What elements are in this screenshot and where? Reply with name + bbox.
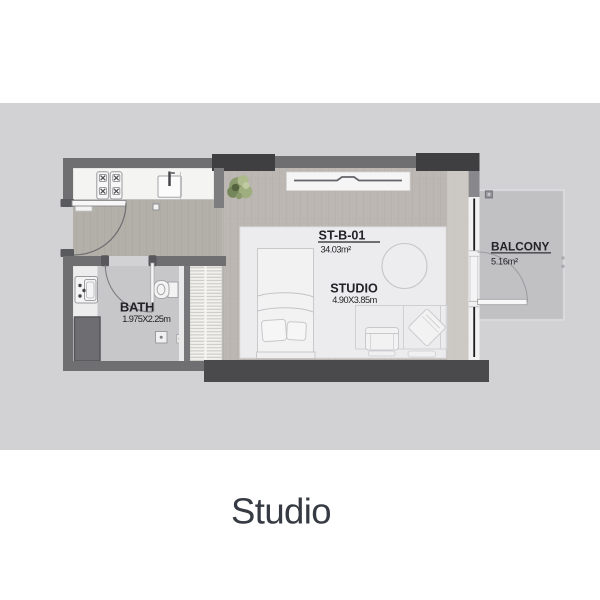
svg-text:Studio: Studio (231, 491, 331, 532)
svg-text:STUDIO: STUDIO (330, 281, 378, 295)
svg-text:BATH: BATH (120, 300, 154, 315)
svg-text:ST-B-01: ST-B-01 (319, 228, 366, 242)
svg-text:5.16m²: 5.16m² (491, 257, 518, 267)
svg-text:BALCONY: BALCONY (491, 240, 549, 254)
svg-text:34.03m²: 34.03m² (321, 245, 352, 255)
svg-text:4.90X3.85m: 4.90X3.85m (332, 295, 377, 305)
svg-text:1.975X2.25m: 1.975X2.25m (122, 314, 171, 324)
